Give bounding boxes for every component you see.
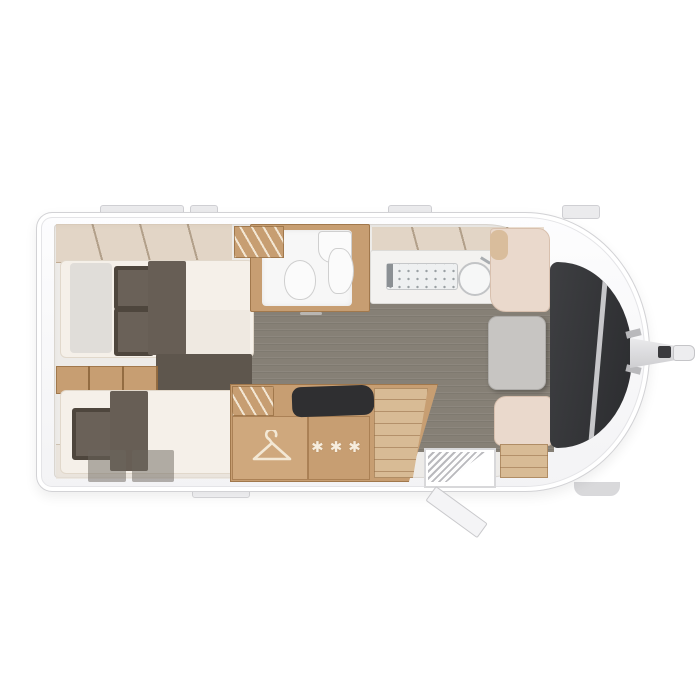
bed-headpad: [70, 263, 112, 353]
hanger-icon: [250, 430, 294, 464]
bedroom-floor: [186, 310, 250, 358]
bathroom-corner-shelves: [234, 226, 284, 258]
bathroom-door-handle: [300, 312, 322, 315]
bench-drawer: [500, 444, 548, 478]
front-panel-divider: [587, 262, 609, 448]
sink-icon: [458, 262, 492, 296]
dinette-table: [488, 316, 546, 390]
cooktop-icon: [292, 385, 375, 418]
caravan-floorplan: ✱✱✱: [0, 0, 700, 700]
bench-bolster: [490, 230, 508, 260]
front-step: [574, 482, 620, 496]
fridge-freezer-stars: ✱✱✱: [306, 438, 372, 456]
roof-vent-icon: [562, 205, 600, 219]
hob-icon: [386, 263, 458, 290]
open-shelves: [232, 386, 274, 416]
coupling-head-icon: [673, 345, 695, 361]
underbed-panel: [132, 450, 174, 482]
dinette-bench-front-bottom: [494, 396, 552, 446]
open-door-leaf: [425, 486, 487, 538]
toilet-icon: [284, 260, 316, 300]
overhead-locker: [56, 224, 232, 263]
coupling-lock: [658, 346, 671, 358]
hob-knobs: [387, 264, 393, 287]
underbed-panel: [88, 450, 126, 482]
washbasin-icon: [328, 248, 354, 294]
bed-runner: [148, 261, 186, 355]
